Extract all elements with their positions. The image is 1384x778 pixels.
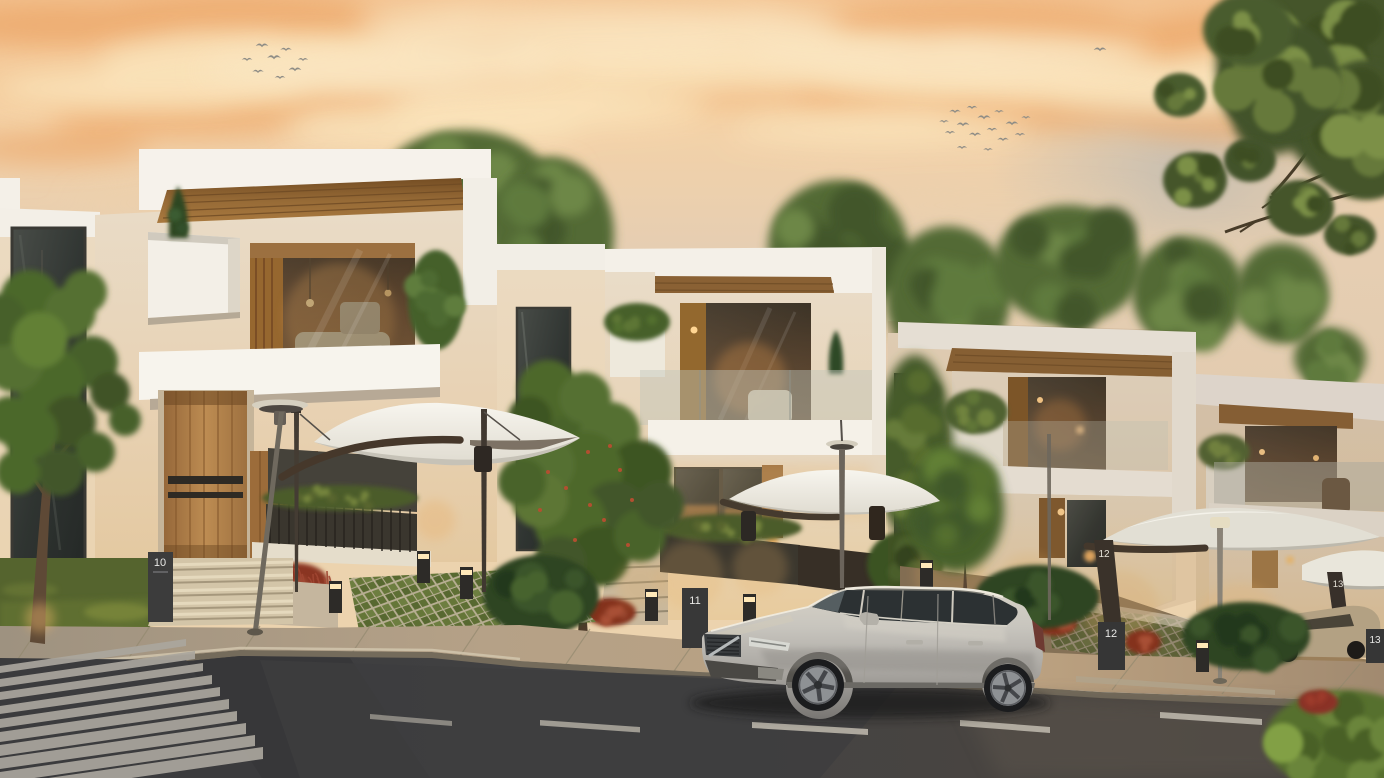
svg-text:10: 10 — [154, 557, 166, 569]
svg-text:13: 13 — [1369, 635, 1381, 646]
svg-text:11: 11 — [689, 595, 700, 607]
svg-text:12: 12 — [1105, 628, 1117, 640]
svg-text:13: 13 — [1333, 579, 1344, 590]
svg-text:12: 12 — [1098, 549, 1110, 560]
